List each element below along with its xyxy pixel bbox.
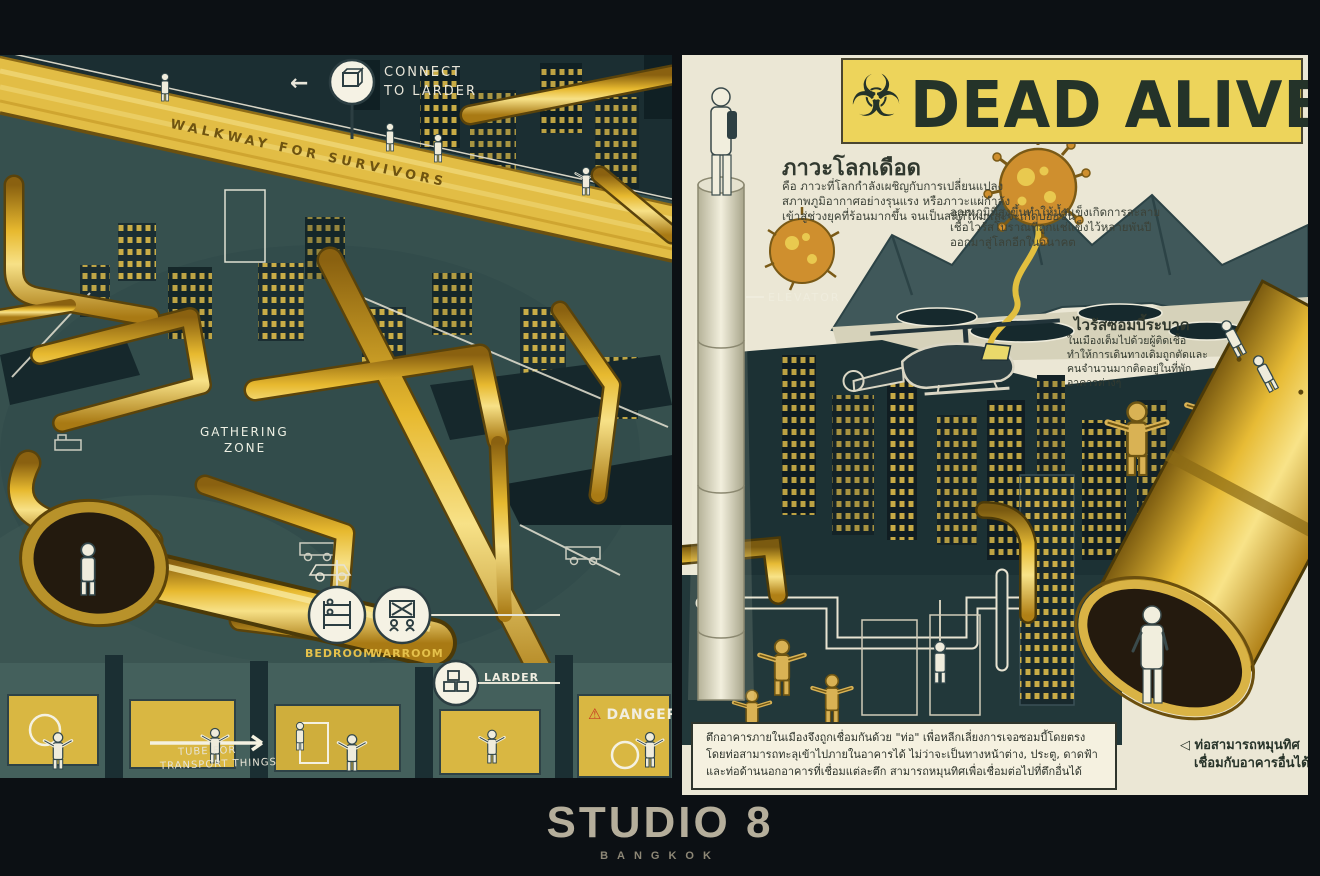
tube-rotation-note-2: เชื่อมกับอาคารอื่นได้ (1194, 755, 1308, 772)
zombie-outbreak-heading: ไวรัสซอมบี้ระบาด (1074, 313, 1190, 337)
warroom-label: WARROOM (370, 647, 434, 660)
caption-line: ตึกอาคารภายในเมืองจึงถูกเชื่อมกันด้วย "ท… (706, 729, 1085, 746)
global-boiling-line: คือ ภาวะที่โลกกำลังเผชิญกับการเปลี่ยนแปล… (782, 179, 1003, 194)
elevator-label: ELEVATOR (768, 291, 841, 304)
connect-sign-label-1: CONNECT (384, 65, 462, 80)
arrow-left-icon: ← (290, 71, 308, 96)
studio-logo: STUDIO 8 (0, 798, 1320, 848)
larder-icon (434, 661, 478, 705)
zombie-outbreak-line: อาคารต่างๆ (1067, 377, 1121, 391)
melt-note-line: อุณหภูมิที่สูงขึ้นทำให้น้ำแข็งเกิดการละล… (950, 205, 1160, 220)
gathering-zone-label-1: GATHERING (200, 425, 289, 440)
artboard: ← CONNECT TO LARDER WALKWAY FOR SURVIVOR… (0, 0, 1320, 876)
bedroom-label: BEDROOM (305, 647, 369, 660)
melt-note-line: เชื้อไวรัสโบราณที่ถูกแช่แข็งไว้หลายพันปี (950, 220, 1151, 235)
poster-title: DEAD ALIVE (910, 69, 1308, 143)
zombie-outbreak-line: ทำให้การเดินทางเดิมถูกตัดและ (1067, 349, 1208, 363)
caption-line: และท่อด้านนอกอาคารที่เชื่อมแต่ละตึก สามา… (706, 763, 1082, 780)
zombie-outbreak-line: คนจำนวนมากติดอยู่ในที่พัก (1067, 363, 1191, 377)
connect-sign-label-2: TO LARDER (384, 84, 477, 99)
street-level (0, 655, 672, 778)
tube-rotation-note-1: ◁ ท่อสามารถหมุนทิศ (1180, 737, 1300, 754)
left-panel-illustration: ← CONNECT TO LARDER WALKWAY FOR SURVIVOR… (0, 55, 672, 778)
zombie-outbreak-line: ในเมืองเต็มไปด้วยผู้ติดเชื้อ (1067, 335, 1186, 349)
larder-label: LARDER (484, 671, 539, 684)
biohazard-icon: ☣ (850, 67, 902, 125)
right-panel-illustration: ☣ DEAD ALIVE ภาวะโลกเดือด คือ ภาวะที่โลก… (682, 55, 1308, 795)
studio-city: BANGKOK (0, 850, 1320, 862)
melt-note-line: ออกมาสู่โลกอีกในอนาคต (950, 235, 1076, 250)
warroom-icon (374, 587, 430, 643)
caption-line: โดยท่อสามารถทะลุเข้าไปภายในอาคารได้ ไม่ว… (706, 746, 1098, 763)
warning-icon: ⚠ (588, 705, 602, 723)
crate-icon (330, 60, 374, 104)
right-artwork (682, 55, 1308, 795)
danger-label: ⚠DANGER (588, 705, 672, 723)
gathering-zone-label-2: ZONE (224, 441, 266, 456)
